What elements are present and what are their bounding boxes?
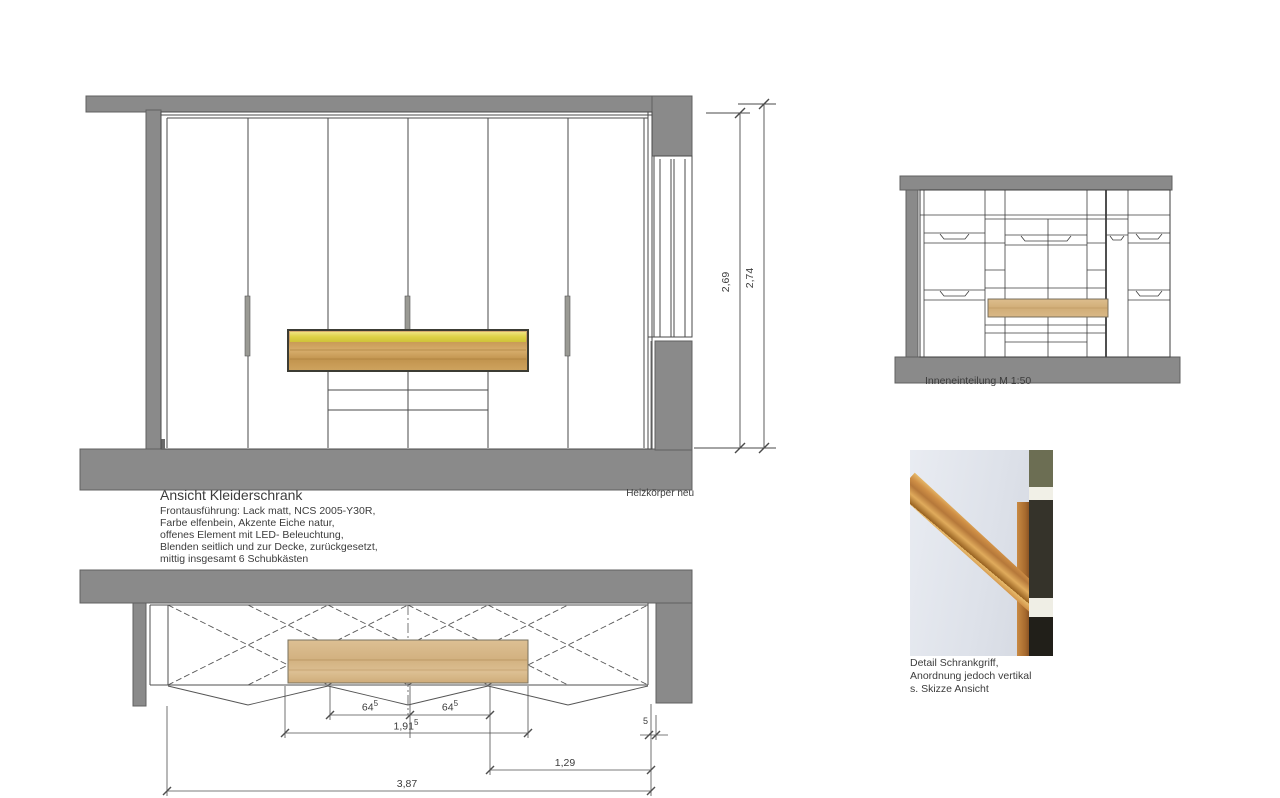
interior-layout-drawing	[893, 173, 1185, 392]
led-strip	[290, 332, 526, 342]
dim-side-gap-label: 5	[643, 716, 648, 726]
front-view-description: Frontausführung: Lack matt, NCS 2005-Y30…	[160, 505, 378, 565]
shelf-board	[1029, 598, 1053, 617]
shelf-shadow	[1029, 617, 1053, 656]
description-line: offenes Element mit LED- Beleuchtung,	[160, 529, 378, 541]
dim-door-right-label: 645	[430, 699, 470, 714]
interior-caption: Inneneinteilung M 1:50	[925, 375, 1031, 388]
dim-total-width-label: 3,87	[384, 778, 430, 790]
dim-door-left-label: 645	[350, 699, 390, 714]
description-line: Blenden seitlich und zur Decke, zurückge…	[160, 541, 378, 553]
description-line: Farbe elfenbein, Akzente Eiche natur,	[160, 517, 378, 529]
plan-oak-element	[288, 640, 528, 683]
front-elevation-drawing	[78, 88, 790, 502]
open-shelves	[1029, 450, 1053, 656]
shelf-board	[1029, 487, 1053, 500]
description-line: mittig insgesamt 6 Schubkästen	[160, 553, 378, 565]
detail-caption-line: Detail Schrankgriff,	[910, 657, 1031, 670]
wardrobe-front	[161, 112, 652, 449]
dim-right-section-label: 1,29	[542, 757, 588, 769]
detail-caption-line: s. Skizze Ansicht	[910, 683, 1031, 696]
shelf-shadow	[1029, 500, 1053, 598]
description-line: Frontausführung: Lack matt, NCS 2005-Y30…	[160, 505, 378, 517]
dim-open-element-label: 1,915	[378, 718, 434, 733]
dim-total-height-label: 2,74	[744, 268, 756, 288]
shelf-background	[1029, 450, 1053, 487]
interior-cabinet	[920, 190, 1170, 357]
dim-inner-height-label: 2,69	[720, 272, 732, 292]
heater-label: Heizkörper neu	[610, 488, 694, 499]
detail-caption-line: Anordnung jedoch vertikal	[910, 670, 1031, 683]
front-view-title: Ansicht Kleiderschrank	[160, 487, 302, 503]
plan-view-drawing	[78, 565, 700, 798]
handle-detail-photo	[910, 450, 1053, 656]
plan-walls	[80, 570, 692, 706]
detail-caption: Detail Schrankgriff, Anordnung jedoch ve…	[910, 657, 1031, 696]
oak-open-element	[288, 330, 528, 371]
height-dimensions	[694, 99, 776, 453]
